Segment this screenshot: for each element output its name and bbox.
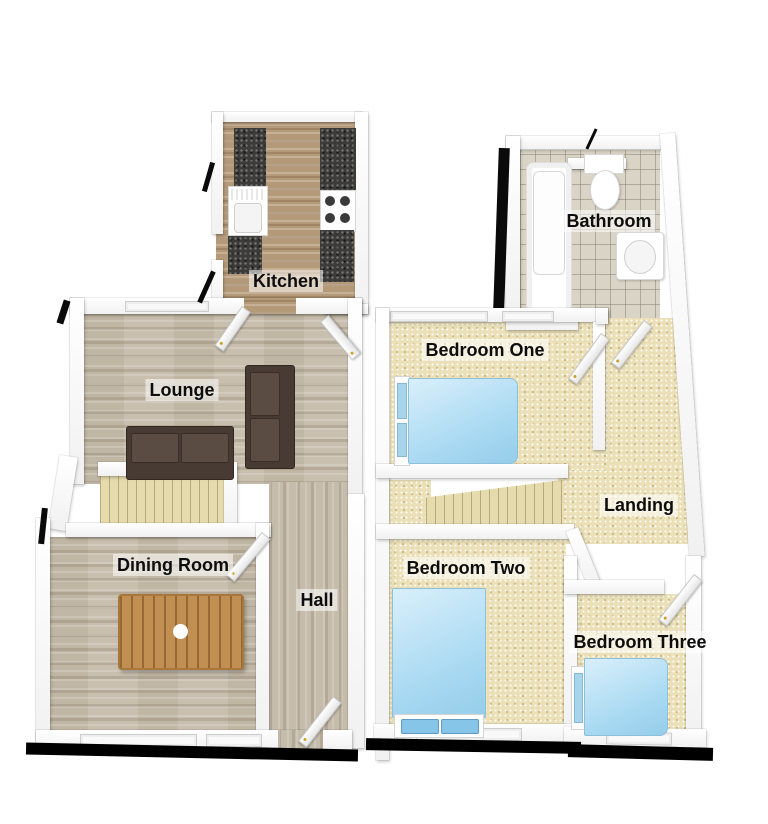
worktop bbox=[234, 128, 266, 186]
lounge-window bbox=[125, 301, 209, 312]
wall bbox=[348, 298, 362, 494]
staircase bbox=[426, 480, 562, 526]
bedroom-one-window bbox=[390, 311, 488, 322]
sofa-large bbox=[126, 426, 234, 480]
room-label-lounge: Lounge bbox=[146, 379, 219, 401]
burner-icon bbox=[340, 213, 350, 223]
double-bed bbox=[408, 378, 518, 464]
wall bbox=[66, 523, 271, 537]
worktop bbox=[320, 230, 354, 282]
sofa-cushion bbox=[250, 418, 280, 462]
bathtub-basin bbox=[533, 171, 565, 275]
wall bbox=[564, 580, 664, 594]
stairwell-side-floor bbox=[389, 480, 431, 526]
room-label-landing: Landing bbox=[600, 494, 678, 516]
wall bbox=[36, 518, 50, 748]
wall bbox=[596, 308, 608, 324]
plan-base-shadow bbox=[568, 744, 713, 761]
sofa-cushion bbox=[131, 433, 179, 463]
wall bbox=[376, 524, 574, 539]
bed-drawer bbox=[441, 719, 479, 734]
wall bbox=[48, 455, 77, 531]
wall bbox=[348, 494, 364, 748]
bed-drawer bbox=[401, 719, 439, 734]
room-label-bedroom-one: Bedroom One bbox=[421, 339, 548, 361]
bedroom-one-window bbox=[502, 311, 554, 322]
kitchen-doorway-floor bbox=[244, 298, 296, 314]
room-label-dining-room: Dining Room bbox=[113, 554, 233, 576]
room-label-bedroom-three: Bedroom Three bbox=[569, 631, 710, 653]
ground-floor-plan: Kitchen Lounge Dining Room Hall bbox=[30, 112, 375, 777]
plan-base-shadow bbox=[366, 738, 581, 754]
room-label-bedroom-two: Bedroom Two bbox=[403, 557, 530, 579]
wall bbox=[256, 523, 269, 735]
toilet bbox=[590, 170, 620, 210]
draining-board bbox=[231, 189, 263, 200]
room-label-bathroom: Bathroom bbox=[563, 210, 656, 232]
sofa-cushion bbox=[250, 372, 280, 416]
wash-basin bbox=[616, 232, 664, 280]
sofa-cushion bbox=[181, 433, 229, 463]
wall bbox=[506, 136, 662, 149]
worktop bbox=[320, 128, 356, 190]
floorplan-canvas: Kitchen Lounge Dining Room Hall bbox=[0, 0, 768, 824]
worktop bbox=[228, 236, 262, 274]
wall bbox=[355, 112, 368, 314]
bathtub bbox=[526, 162, 572, 316]
headboard-panel bbox=[397, 383, 407, 419]
sink-bowl bbox=[234, 203, 262, 233]
first-floor-plan: Bathroom Bedroom One Landing Bedroom Two… bbox=[368, 128, 738, 798]
room-label-hall: Hall bbox=[296, 589, 337, 611]
room-label-kitchen: Kitchen bbox=[249, 270, 323, 292]
dining-table bbox=[118, 594, 244, 670]
wall bbox=[212, 112, 223, 234]
sofa-small bbox=[245, 365, 295, 469]
bed-footboard bbox=[394, 714, 484, 738]
burner-icon bbox=[340, 196, 350, 206]
wall bbox=[212, 112, 362, 122]
burner-icon bbox=[325, 213, 335, 223]
table-centerpiece bbox=[173, 624, 188, 639]
burner-icon bbox=[325, 196, 335, 206]
hall-window bbox=[206, 734, 262, 747]
headboard-panel bbox=[397, 423, 407, 457]
wall bbox=[376, 464, 568, 478]
double-bed bbox=[392, 588, 486, 718]
door-swing-mark bbox=[56, 300, 70, 325]
kitchen-sink bbox=[228, 186, 268, 236]
basin-bowl bbox=[624, 240, 656, 274]
staircase bbox=[100, 476, 224, 523]
wall bbox=[70, 298, 362, 314]
headboard-panel bbox=[574, 673, 583, 723]
hob bbox=[320, 190, 356, 232]
single-bed bbox=[584, 658, 668, 736]
